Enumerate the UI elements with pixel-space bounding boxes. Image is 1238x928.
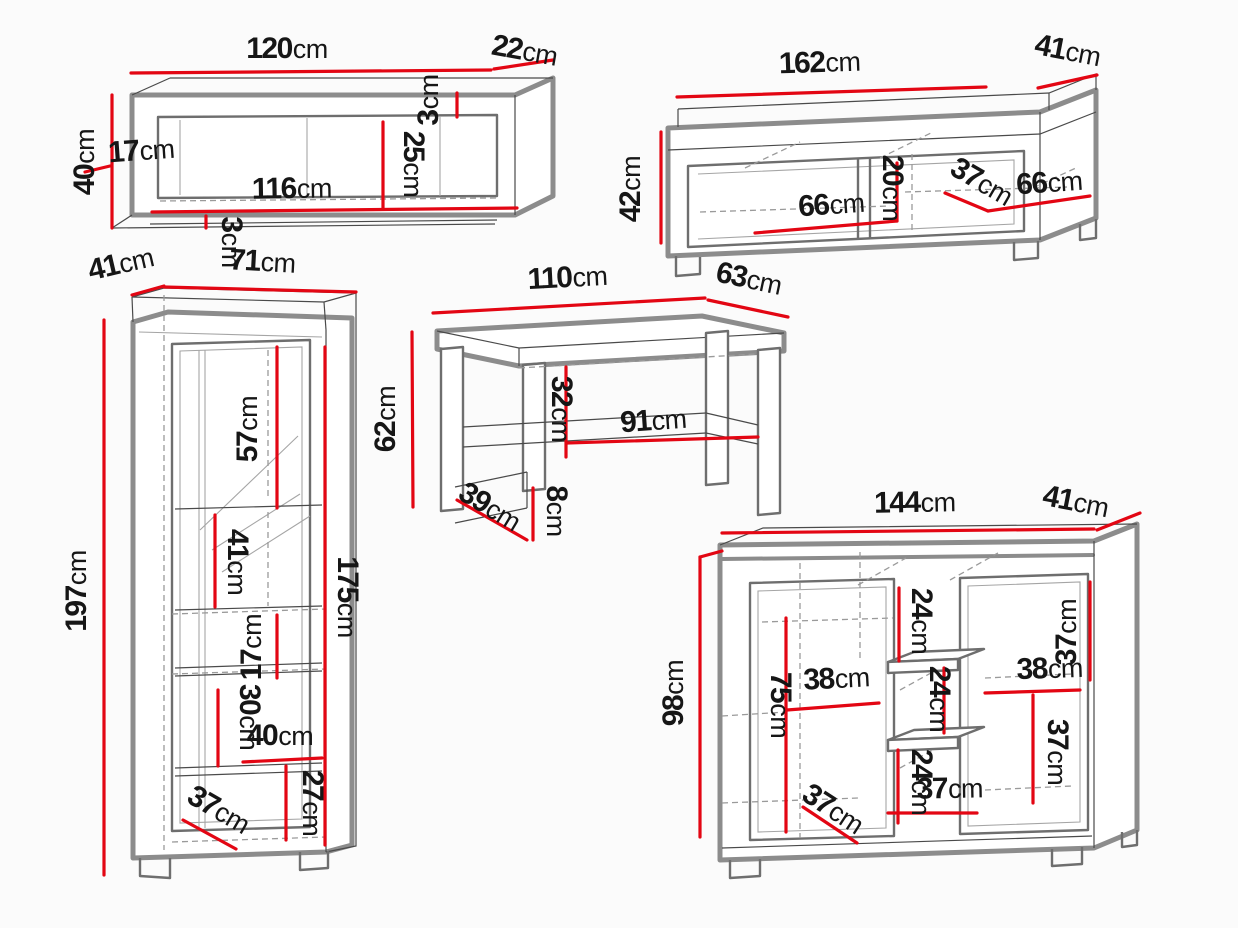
tv-stand-drawing: 162cm 41cm 42cm 66cm 20cm 37cm 66cm xyxy=(614,28,1104,276)
display-cabinet-drawing: 41cm 71cm 197cm 57cm 41cm 175cm 17cm 30c… xyxy=(60,240,364,878)
dim-cabinet-mid-section: 41cm xyxy=(221,529,254,595)
dim-shelf-width: 120cm xyxy=(246,32,328,65)
diagram-canvas: 120cm 22cm 40cm 17cm 116cm 25cm 3cm 3cm xyxy=(0,0,1238,928)
dim-tv-inner-height: 20cm xyxy=(876,155,909,221)
coffee-table-drawing: 110cm 63cm 62cm 32cm 91cm 39cm 8cm xyxy=(369,256,788,540)
dim-tv-depth: 41cm xyxy=(1032,28,1103,73)
dim-cabinet-shelf-gap: 17cm xyxy=(235,614,268,680)
dim-tv-width: 162cm xyxy=(778,45,861,81)
dim-sideboard-top-center: 24cm xyxy=(905,588,938,654)
dim-sideboard-right-shelf: 38cm xyxy=(1016,651,1083,686)
dim-table-height: 62cm xyxy=(369,386,402,452)
dim-shelf-side-inset: 17cm xyxy=(107,132,176,170)
dim-shelf-inner-height: 25cm xyxy=(397,131,430,197)
dim-cabinet-depth: 41cm xyxy=(85,240,157,287)
dim-tv-height: 42cm xyxy=(614,156,647,222)
dim-cabinet-width: 71cm xyxy=(228,243,296,279)
dim-table-shelf-width: 91cm xyxy=(619,402,688,440)
dim-sideboard-bottom-width: 37cm xyxy=(916,771,983,805)
dim-cabinet-inner-width: 40cm xyxy=(247,719,313,752)
dim-shelf-inner-width: 116cm xyxy=(252,171,332,205)
dim-sideboard-left-shelf: 38cm xyxy=(802,660,870,696)
dim-sideboard-width: 144cm xyxy=(874,485,956,519)
dim-cabinet-inner-height: 175cm xyxy=(331,556,364,638)
dim-tv-right-compartment: 66cm xyxy=(1015,164,1084,202)
furniture-dimensions-diagram: 120cm 22cm 40cm 17cm 116cm 25cm 3cm 3cm xyxy=(0,0,1238,928)
dim-table-width: 110cm xyxy=(527,259,609,296)
dim-sideboard-left-height: 75cm xyxy=(764,672,797,738)
dim-cabinet-bottom-section: 27cm xyxy=(296,770,329,836)
dim-sideboard-depth: 41cm xyxy=(1040,479,1111,524)
wall-shelf-body xyxy=(112,78,553,228)
dim-shelf-depth: 22cm xyxy=(489,29,560,73)
dim-table-shelf-clearance: 32cm xyxy=(545,376,578,442)
dim-sideboard-right-section: 37cm xyxy=(1041,719,1074,785)
sideboard-drawing: 144cm 41cm 98cm 24cm 37cm 38cm 75cm 24cm… xyxy=(657,479,1140,878)
dim-table-depth: 63cm xyxy=(713,256,785,302)
dim-sideboard-height: 98cm xyxy=(657,660,690,726)
dim-tv-left-compartment: 66cm xyxy=(797,186,866,224)
dim-shelf-height: 40cm xyxy=(68,129,101,195)
dim-cabinet-top-section: 57cm xyxy=(231,396,264,462)
dim-shelf-top-panel: 3cm xyxy=(412,74,445,125)
wall-shelf-drawing: 120cm 22cm 40cm 17cm 116cm 25cm 3cm 3cm xyxy=(68,29,560,268)
dim-cabinet-height: 197cm xyxy=(60,550,93,632)
dim-table-rail-height: 8cm xyxy=(540,485,573,536)
dim-table-leg-spacing: 39cm xyxy=(453,476,527,538)
dim-sideboard-mid-section: 24cm xyxy=(923,666,956,732)
